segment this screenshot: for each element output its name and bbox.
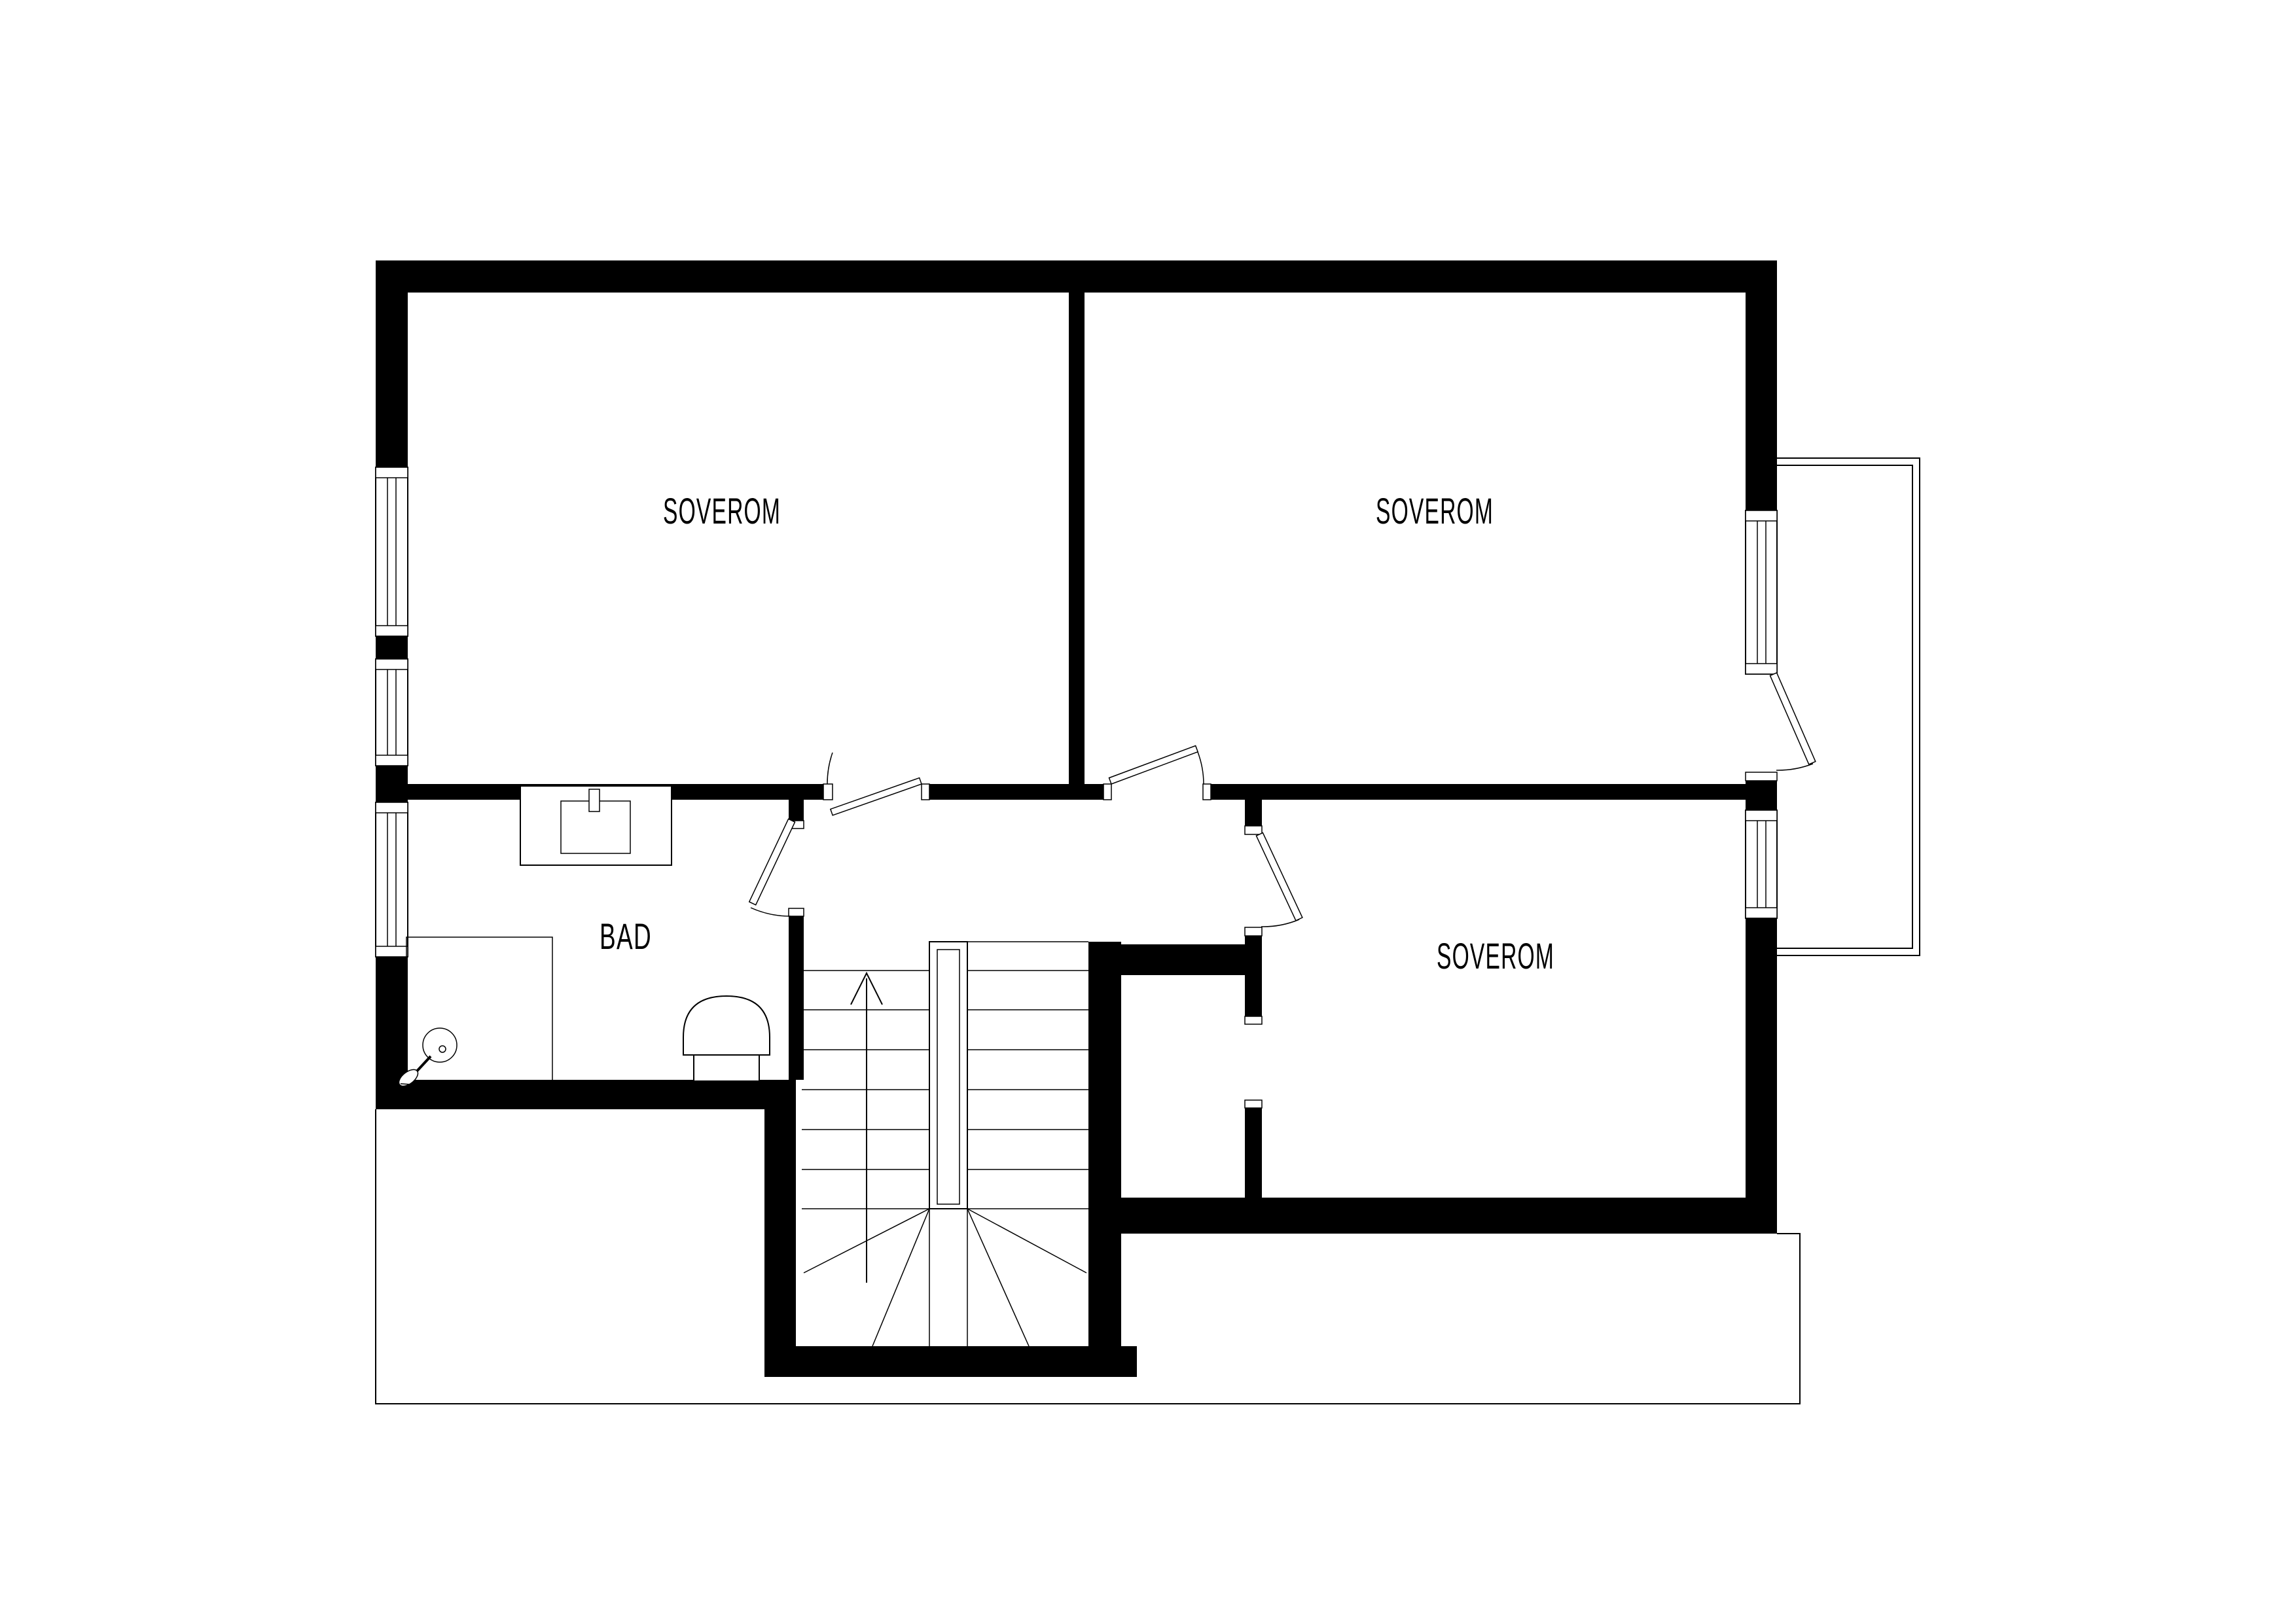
doors (749, 673, 1816, 927)
wall-bedroom3-south (1088, 1198, 1777, 1234)
wall-right-3 (1746, 918, 1777, 1234)
floor-plan-drawing: SOVEROM SOVEROM SOVEROM BAD (0, 0, 2296, 1623)
wall-closet-north (1121, 944, 1245, 975)
stairs-icon (802, 942, 1088, 1346)
wall-right-1 (1746, 293, 1777, 510)
label-bedroom-top-right: SOVEROM (1376, 490, 1494, 531)
sink-icon (520, 786, 672, 865)
window-icon-right-1 (1746, 510, 1777, 674)
bathroom-fixtures (396, 786, 770, 1090)
up-arrow-icon (851, 973, 882, 1283)
door-swing-icon-balcony[interactable] (1770, 673, 1816, 770)
wall-bath-south (376, 1080, 796, 1109)
wall-left-1 (376, 293, 408, 467)
interior-walls (408, 293, 1746, 1198)
wall-mid-right (1211, 784, 1746, 800)
stair-handrail (929, 942, 967, 1209)
wall-left-3 (376, 766, 408, 802)
window-icon-right-2 (1746, 810, 1777, 918)
door-swing-icon-bedroom2[interactable] (1109, 745, 1204, 784)
label-bedroom-top-left: SOVEROM (663, 490, 781, 531)
label-bathroom: BAD (600, 916, 652, 957)
wall-left-2 (376, 636, 408, 659)
wall-top (376, 260, 1777, 293)
toilet-icon (683, 996, 770, 1081)
balcony-railing (1777, 458, 1920, 955)
wall-bath-east-lower (789, 916, 804, 1080)
door-swing-icon-bathroom[interactable] (749, 819, 795, 916)
wall-bedroom3-west-1 (1245, 800, 1262, 826)
wall-right-2 (1746, 781, 1777, 810)
wall-mid-center (929, 784, 1103, 800)
wall-bedroom3-west-2 (1245, 936, 1262, 1016)
wall-bath-east-upper (789, 800, 804, 821)
door-swing-icon-bedroom3[interactable] (1256, 832, 1302, 927)
wall-stair-bottom (764, 1346, 1137, 1377)
wall-stair-west (764, 1109, 796, 1377)
floor-plan-page: SOVEROM SOVEROM SOVEROM BAD (0, 0, 2296, 1623)
label-bedroom-bottom-right: SOVEROM (1437, 935, 1554, 976)
wall-bedroom3-west-3 (1245, 1108, 1262, 1198)
wall-stair-east (1088, 942, 1121, 1377)
balcony-door-sill (1746, 772, 1777, 781)
window-icon-left-1 (376, 467, 408, 636)
wall-between-top-bedrooms (1069, 293, 1085, 784)
door-swing-icon-bedroom1[interactable] (827, 753, 922, 815)
window-icon-left-3 (376, 802, 408, 957)
window-icon-left-2 (376, 659, 408, 766)
